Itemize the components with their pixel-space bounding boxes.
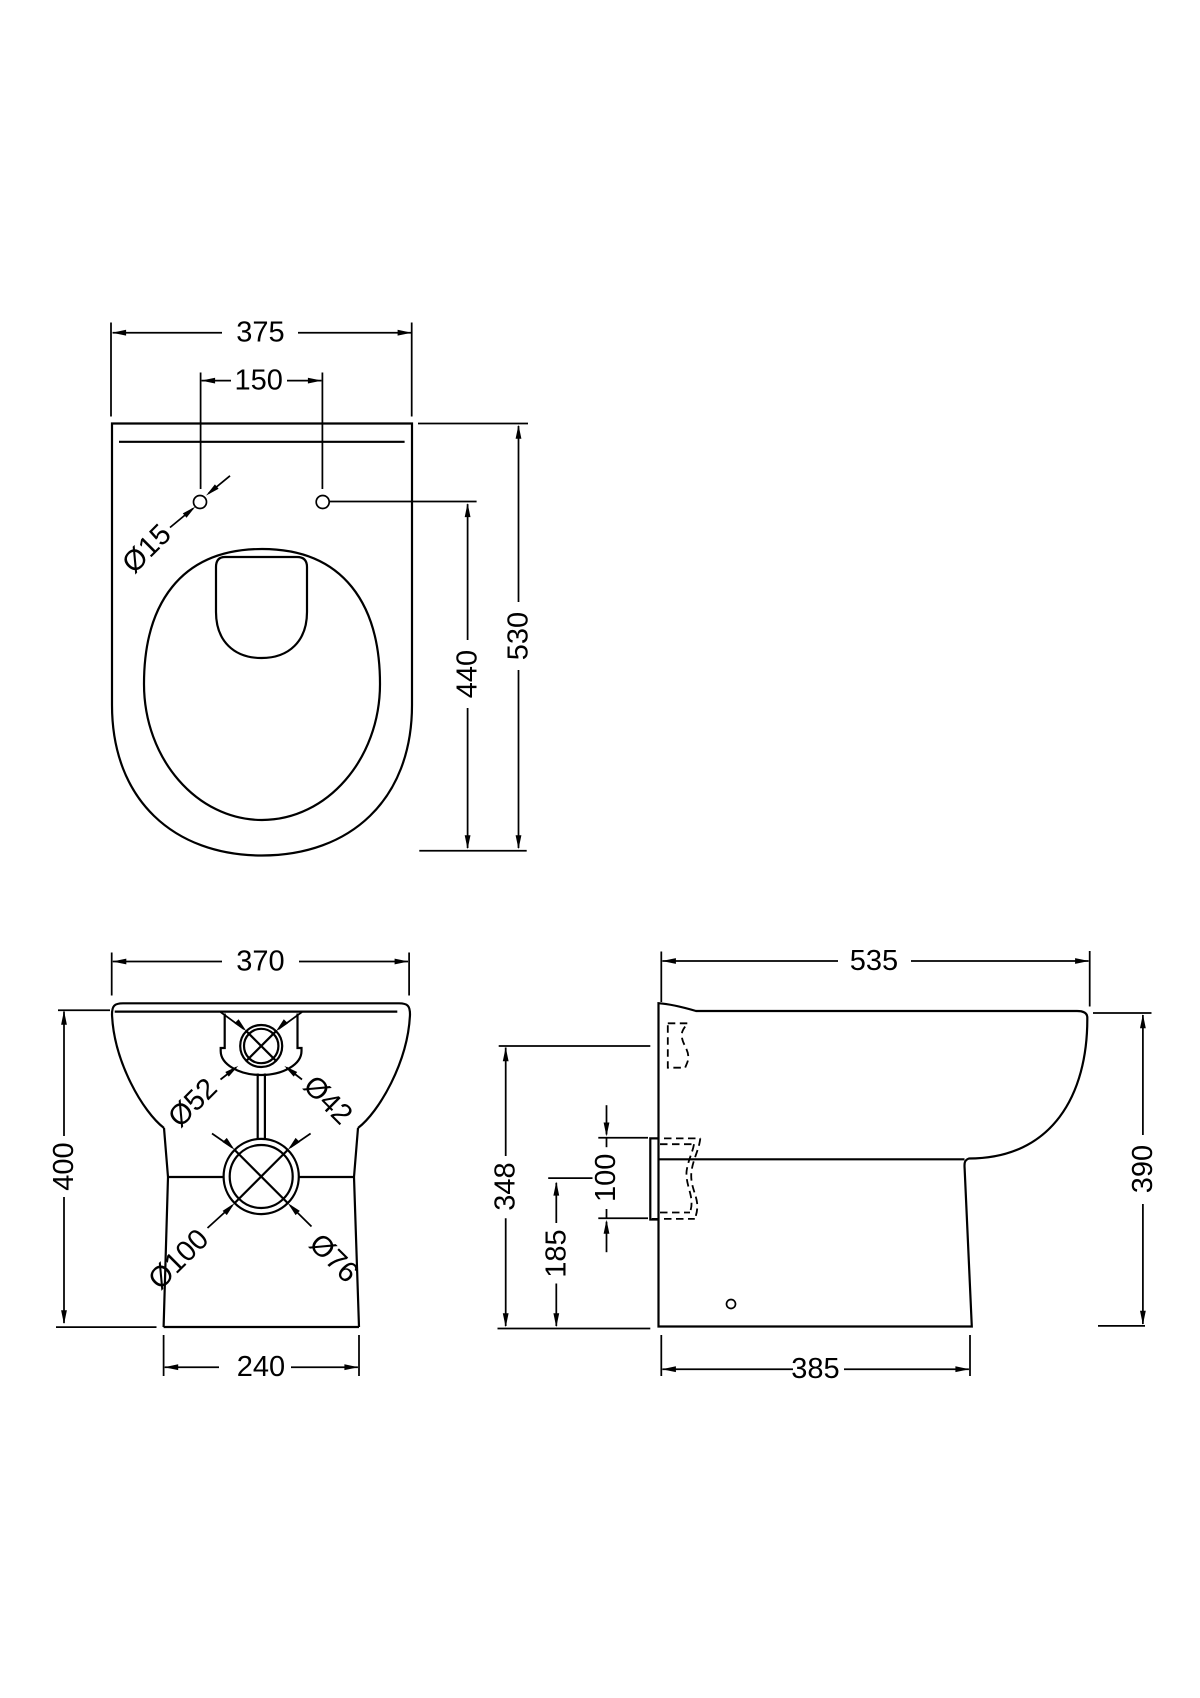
svg-text:530: 530 — [503, 612, 535, 660]
svg-text:150: 150 — [235, 365, 283, 397]
svg-text:348: 348 — [490, 1162, 522, 1210]
svg-text:440: 440 — [452, 650, 484, 698]
svg-text:370: 370 — [236, 946, 284, 978]
svg-text:100: 100 — [590, 1154, 622, 1202]
svg-text:535: 535 — [850, 945, 898, 977]
svg-text:385: 385 — [791, 1353, 839, 1385]
svg-text:185: 185 — [540, 1229, 572, 1277]
svg-text:390: 390 — [1127, 1145, 1159, 1193]
svg-text:400: 400 — [48, 1142, 80, 1190]
svg-text:375: 375 — [236, 317, 284, 349]
svg-text:240: 240 — [237, 1351, 285, 1383]
